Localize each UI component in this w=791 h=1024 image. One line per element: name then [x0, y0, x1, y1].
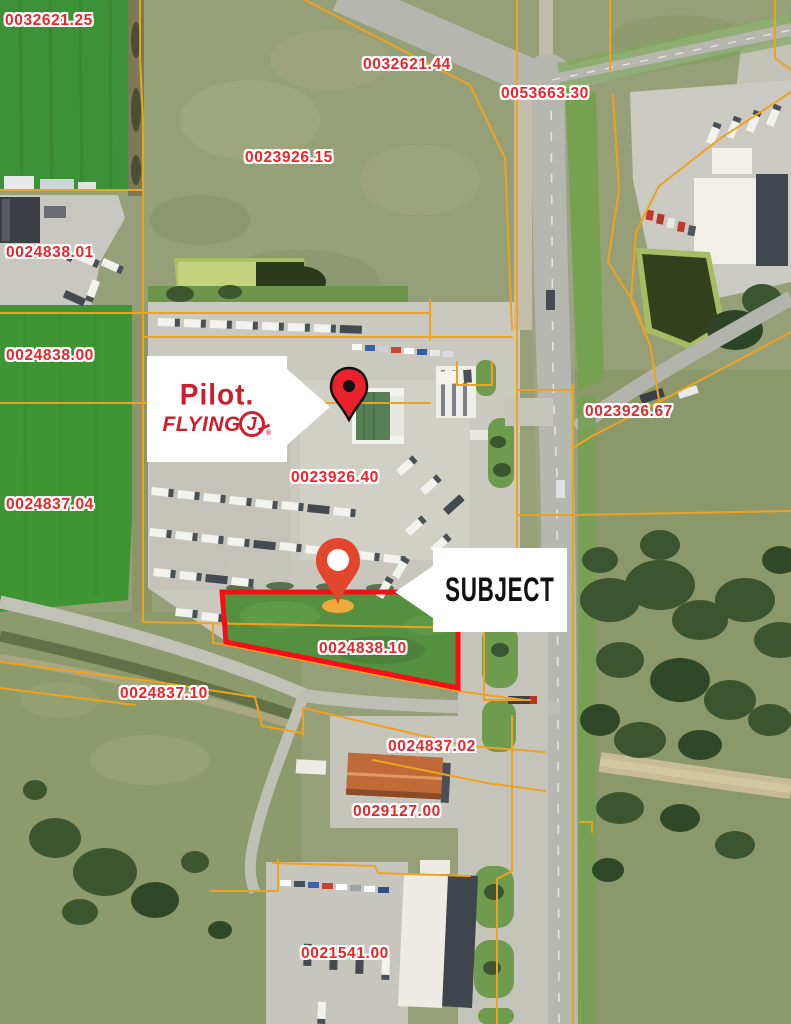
- pilot-wordmark-period: .: [245, 378, 254, 411]
- pilot-location-pin-icon[interactable]: [329, 366, 369, 422]
- parcel-label: 0023926.40: [291, 469, 379, 487]
- parcel-label: 0032621.25: [5, 12, 93, 30]
- parcel-label: 0024838.00: [6, 347, 94, 365]
- flying-j-letter: J: [247, 415, 258, 433]
- aerial-photo: [0, 0, 791, 1024]
- flying-j-wordmark: FLYING J ®: [162, 411, 271, 437]
- parcel-label: 0024838.01: [6, 244, 94, 262]
- flying-wordmark-text: FLYING: [162, 414, 240, 435]
- flying-j-circle-logo: J: [239, 411, 265, 437]
- parcel-label: 0024837.02: [388, 738, 476, 756]
- south-building-site: [266, 860, 478, 1024]
- parcel-label: 0032621.44: [363, 56, 451, 74]
- pilot-flying-j-callout: Pilot. FLYING J ®: [147, 356, 287, 462]
- parcel-label: 0053663.30: [501, 85, 589, 103]
- parcel-label: 0024837.04: [6, 496, 94, 514]
- crop-fields: [0, 0, 152, 613]
- parcel-label: 0024837.10: [120, 685, 208, 703]
- pilot-wordmark: Pilot.: [180, 380, 254, 409]
- callout-arrow-left: [395, 566, 433, 618]
- parcel-label: 0029127.00: [353, 803, 441, 821]
- parcel-label: 0023926.67: [585, 403, 673, 421]
- callout-arrow-right: [287, 369, 330, 445]
- pilot-wordmark-text: Pilot: [180, 378, 246, 411]
- parcel-label: 0024838.10: [319, 640, 407, 658]
- subject-callout: SUBJECT: [433, 548, 567, 632]
- parcel-label: 0021541.00: [301, 945, 389, 963]
- aerial-parcel-map: 0032621.25 0032621.44 0053663.30 0023926…: [0, 0, 791, 1024]
- subject-callout-label: SUBJECT: [445, 571, 554, 610]
- parcel-label: 0023926.15: [245, 149, 333, 167]
- subject-location-pin-icon[interactable]: [312, 534, 364, 614]
- registered-trademark: ®: [266, 430, 272, 437]
